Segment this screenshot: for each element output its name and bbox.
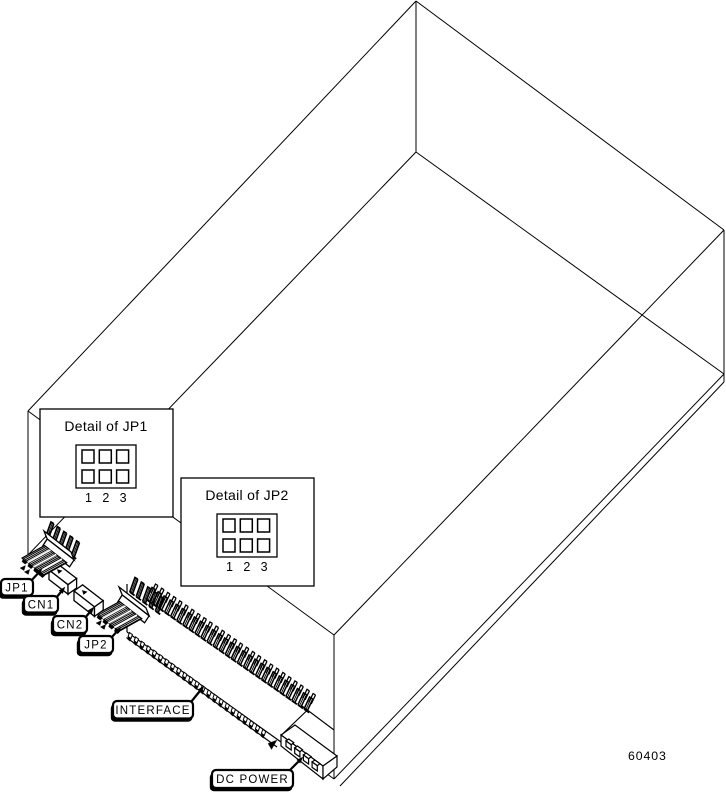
svg-text:60403: 60403 xyxy=(628,749,667,763)
svg-text:DC POWER: DC POWER xyxy=(216,774,289,786)
svg-text:2: 2 xyxy=(243,560,250,574)
svg-text:1: 1 xyxy=(85,491,92,505)
svg-text:CN2: CN2 xyxy=(57,620,84,632)
svg-text:Detail of JP2: Detail of JP2 xyxy=(205,487,288,503)
svg-text:3: 3 xyxy=(261,560,268,574)
svg-text:INTERFACE: INTERFACE xyxy=(115,705,190,717)
svg-text:1: 1 xyxy=(226,560,233,574)
svg-text:Detail of JP1: Detail of JP1 xyxy=(64,418,147,434)
svg-text:JP2: JP2 xyxy=(84,640,107,652)
svg-text:CN1: CN1 xyxy=(28,599,55,611)
svg-text:3: 3 xyxy=(120,491,127,505)
svg-text:JP1: JP1 xyxy=(5,582,28,594)
svg-text:2: 2 xyxy=(102,491,109,505)
